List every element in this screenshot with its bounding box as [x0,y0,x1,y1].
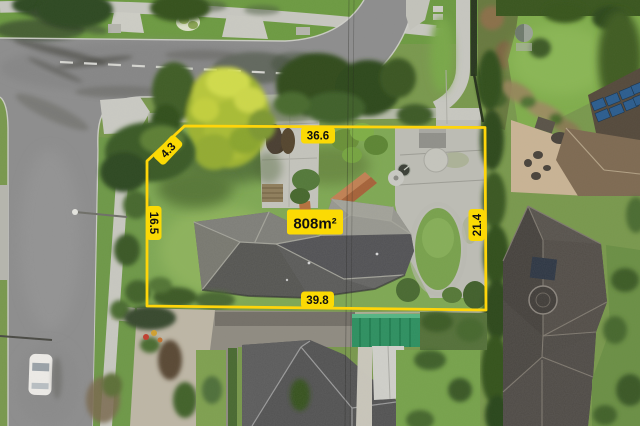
svg-text:36.6: 36.6 [307,131,329,143]
svg-text:808m²: 808m² [293,216,336,233]
svg-text:39.8: 39.8 [306,295,329,307]
svg-text:16.5: 16.5 [147,212,159,235]
svg-text:21.4: 21.4 [472,213,484,236]
